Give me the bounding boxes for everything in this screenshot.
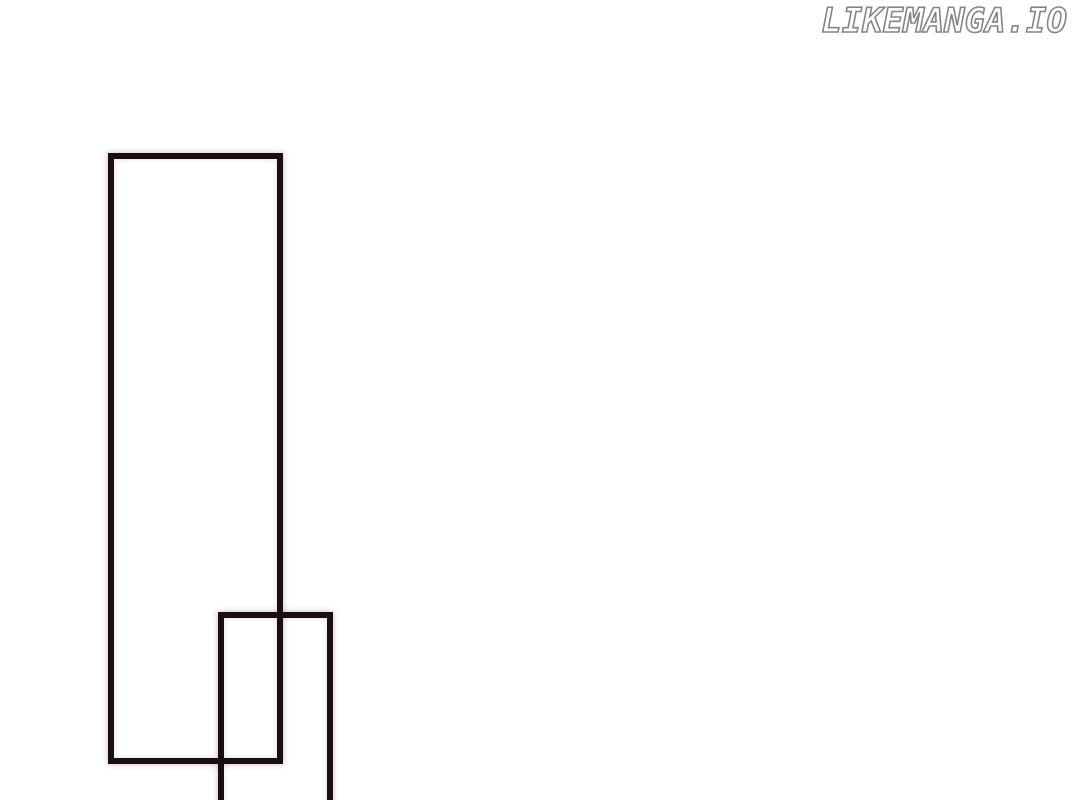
site-watermark: LIKEMANGA.IO <box>821 4 1067 38</box>
manga-panel-small <box>218 612 333 800</box>
manga-page-view: LIKEMANGA.IO <box>0 0 1080 800</box>
